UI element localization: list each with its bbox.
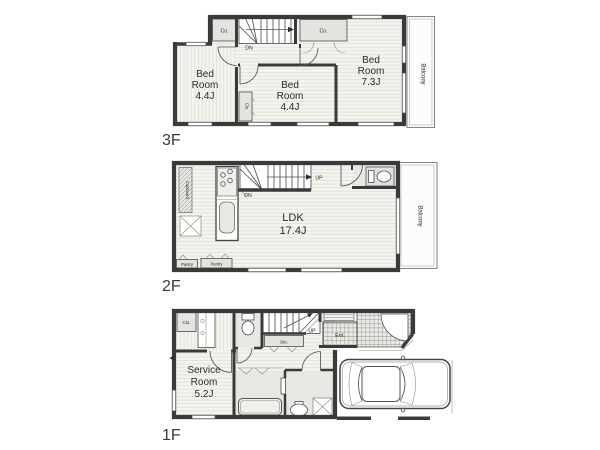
bedroom-mid-3f-line1: Bed [281,80,299,91]
vent-mark-1f [170,356,175,361]
bedroom-left-3f-line3: 4.4J [196,91,215,102]
ldk-2f-line2: 17.4J [280,225,307,237]
floor-plan-1f: Ent. UP Sto. Clo. [162,309,452,444]
room-label-ldk-2f: LDK 17.4J [280,212,307,237]
car-roof [362,367,400,402]
toilet-bowl-1f [242,321,254,335]
bedroom-right-3f-line1: Bed [362,55,380,66]
parking-edge-left [337,417,371,421]
ldk-2f-line1: LDK [282,212,304,224]
floor-plan-2f: Balcony UP DN Cupboard [162,161,437,295]
toilet-tank-2f [369,171,375,183]
bedroom-right-3f-line2: Room [358,66,385,77]
stairs-1f: UP [263,311,320,335]
floor-label-2f: 2F [162,278,181,295]
toilet-2f [366,167,394,186]
bedroom-left-3f-line1: Bed [196,69,214,80]
pantry-right-label-2f: Pantry [211,262,224,267]
toilet-1f [242,314,254,336]
balcony-label-2f: Balcony [417,205,423,226]
storage-label-1f: Sto. [280,340,288,345]
stairs-up-label-1f: UP [308,329,316,335]
entrance-hall-1f: Ent. [323,312,357,348]
floor-plan-3f: Balcony DN Co. Co. Clo. [162,15,435,149]
wardrobe-1f [198,313,215,348]
cupboard-label-2f: Cupboard [185,181,190,200]
floorplan-canvas: Balcony DN Co. Co. Clo. [0,0,600,450]
closet-co-left-label-3f: Co. [220,29,228,35]
service-room-1f-line1: Service [187,365,221,376]
floor-label-3f: 3F [162,132,181,149]
balcony-2f: Balcony [398,163,437,269]
floor-label-1f: 1F [162,427,181,444]
kitchen-2f [216,167,238,241]
bathtub-1f [239,399,282,416]
closet-co-left-3f: Co. [213,19,237,41]
bedroom-left-3f-line2: Room [192,80,219,91]
car-top-view-icon [340,356,450,412]
pantry-left-label-2f: Pantry [181,262,194,267]
sliding-door-1f [281,378,286,394]
balcony-label-3f: Balcony [420,63,426,84]
toilet-bowl-2f [377,171,391,182]
washbasin-1f [291,404,308,416]
balcony-3f: Balcony [407,17,435,128]
entrance-label-1f: Ent. [335,333,345,339]
closet-label-1f: Clo. [182,320,190,325]
closet-clo-mid-label-3f: Clo. [244,103,249,110]
stairs-up-label-2f: UP [315,176,323,182]
bedroom-mid-3f-line2: Room [277,91,304,102]
floorplan-drawing: Balcony DN Co. Co. Clo. [0,0,600,450]
cupboard-2f: Cupboard [179,168,192,213]
parking-edge-right [398,417,430,421]
refrigerator-space-2f [180,216,201,236]
bedroom-right-3f-line3: 7.3J [362,77,381,88]
service-room-1f-line2: Room [191,377,218,388]
stairs-dn-label-3f: DN [245,46,253,52]
parking-1f [337,356,452,420]
kitchen-sink [220,202,235,233]
closet-co-right-label-3f: Co. [319,29,327,35]
service-room-1f-line3: 5.2J [195,389,214,400]
stove [218,168,237,196]
stairs-dn-label-2f: DN [244,193,252,199]
bedroom-mid-3f-line3: 4.4J [281,102,300,113]
toilet-tank-1f [242,314,254,321]
